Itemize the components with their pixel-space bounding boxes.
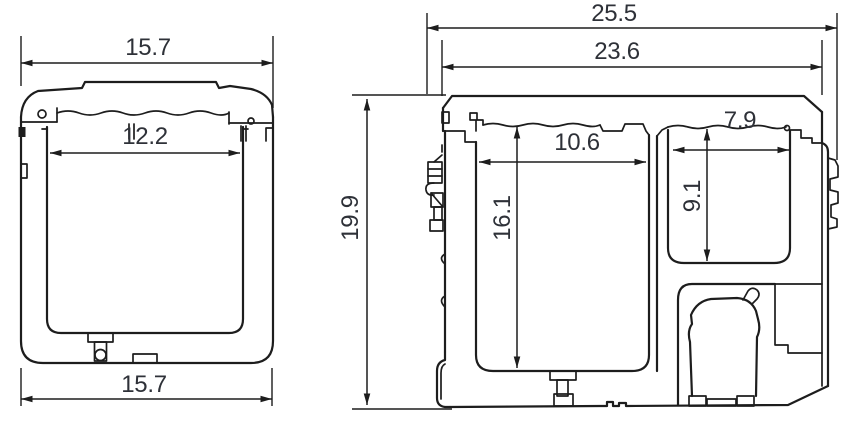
latch — [828, 158, 838, 229]
dim-label-small-inner-width: 7.9 — [724, 107, 756, 134]
drain-plug — [88, 333, 113, 361]
compressor-nub — [743, 288, 759, 304]
dim-small-inner-height: 9.1 — [679, 129, 707, 261]
front-drain-plug — [550, 371, 576, 406]
dim-main-inner-height: 16.1 — [489, 127, 517, 368]
dim-main-inner-width: 10.6 — [479, 129, 646, 162]
front-view-drawing: 25.5 23.6 19.9 — [337, 0, 838, 409]
dim-label-main-inner-width: 10.6 — [554, 129, 600, 156]
dim-label-front-lid-width: 23.6 — [594, 38, 640, 65]
machine-compartment — [678, 284, 822, 406]
hinge-bracket — [426, 145, 443, 231]
rim-notch-left — [470, 113, 483, 131]
rim-step-divider — [600, 124, 649, 135]
hinge-pin-circle-left — [38, 110, 46, 118]
side-view-drawing: 15.7 — [19, 34, 274, 406]
dim-label-main-inner-height: 16.1 — [489, 195, 516, 241]
dim-side-top-width: 15.7 — [21, 34, 273, 108]
cooler-dimension-drawing: 15.7 — [0, 0, 849, 433]
foot-hook-left — [437, 352, 450, 407]
rim-pin-circle — [785, 126, 790, 131]
dim-label-side-inner-width: 12.2 — [122, 123, 168, 150]
dim-label-front-overall-height: 19.9 — [337, 195, 364, 241]
dim-side-bottom-width: 15.7 — [21, 368, 272, 406]
inner-compartment — [42, 127, 248, 333]
lid-gasket-wave — [57, 111, 229, 115]
compressor — [689, 288, 759, 406]
technical-drawing-canvas: 15.7 — [0, 0, 849, 433]
dim-label-front-overall-width: 25.5 — [591, 0, 637, 27]
condenser-recess-step — [775, 284, 822, 353]
front-body-outline — [437, 131, 838, 407]
dim-label-small-inner-height: 9.1 — [679, 180, 706, 212]
bottom-fitting-tab — [133, 354, 157, 362]
front-lid-outline — [442, 96, 822, 143]
body-outline — [19, 117, 274, 363]
rim-step-right — [790, 130, 822, 143]
main-compartment — [443, 113, 657, 371]
dim-front-overall-width: 25.5 — [427, 0, 837, 160]
dim-label-side-top-width: 15.7 — [125, 34, 171, 61]
dim-front-lid-width: 23.6 — [442, 38, 822, 96]
dim-label-side-bottom-width: 15.7 — [121, 371, 167, 398]
dim-side-inner-width: 12.2 — [50, 123, 240, 153]
main-rim-wave — [483, 124, 600, 127]
dim-front-overall-height: 19.9 — [337, 95, 452, 409]
hinge-detail-mark — [19, 127, 26, 137]
